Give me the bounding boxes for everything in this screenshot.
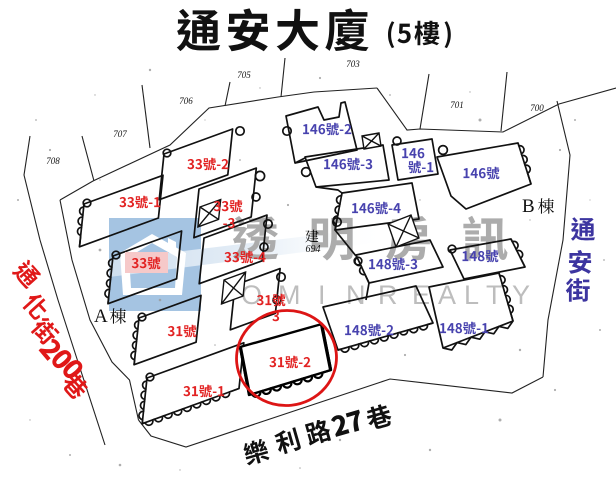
svg-text:B: B [522,196,535,217]
svg-text:701: 701 [450,100,464,110]
svg-text:706: 706 [179,96,193,106]
svg-text:700: 700 [530,103,544,113]
svg-text:A: A [94,306,108,327]
svg-text:708: 708 [46,156,60,166]
svg-text:703: 703 [346,59,360,69]
svg-text:694: 694 [306,244,321,255]
svg-text:705: 705 [237,70,251,80]
svg-text:707: 707 [113,129,127,139]
